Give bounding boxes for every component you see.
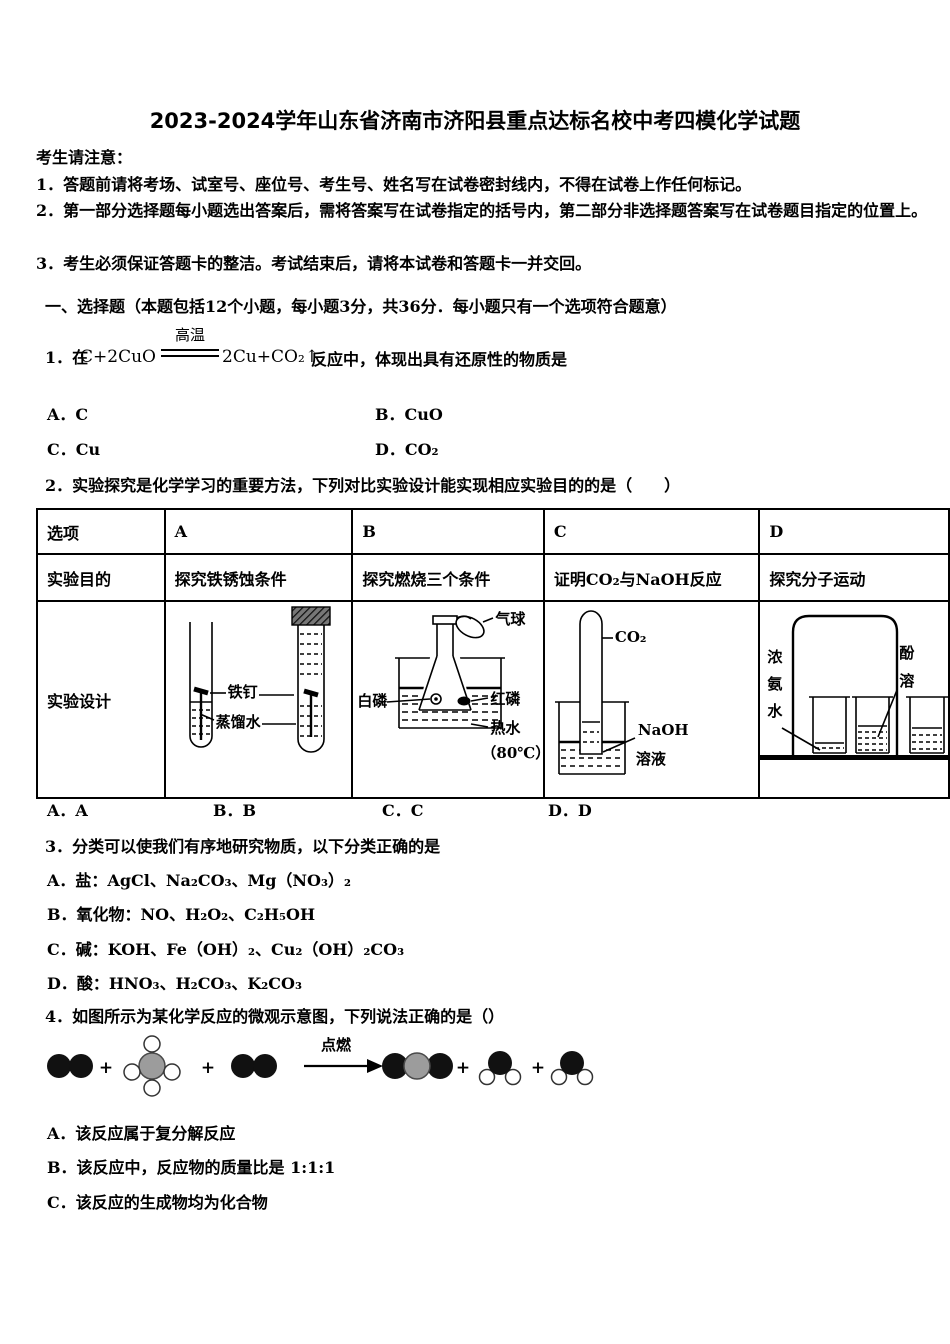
red-phosphorus-label: 红磷	[490, 690, 520, 709]
ammonia-water-label: 浓氨水	[767, 644, 784, 725]
q4-text: 4．如图所示为某化学反应的微观示意图，下列说法正确的是（）	[45, 1003, 504, 1030]
plus-sign: +	[456, 1058, 470, 1078]
q3-option-d: D．酸：HNO₃、H₂CO₃、K₂CO₃	[47, 970, 302, 997]
product-molecule-1	[382, 1053, 453, 1079]
notice-heading: 考生请注意：	[36, 144, 132, 171]
design-c-cell: CO₂ NaOH 溶液	[544, 601, 759, 798]
purpose-b: 探究燃烧三个条件	[352, 554, 544, 601]
reaction-micro-diagram: + + 点燃	[40, 1030, 625, 1109]
purpose-a: 探究铁锈蚀条件	[165, 554, 353, 601]
design-a-cell: 铁钉 蒸馏水	[165, 601, 353, 798]
design-b-cell: 气球 白磷 红磷 热水 （80℃）	[352, 601, 544, 798]
iron-nail-label: 铁钉	[228, 683, 258, 702]
q2-option-b: B．B	[213, 797, 256, 824]
equation-right-side: 2Cu+CO₂↑	[222, 347, 319, 367]
temperature-label: （80℃）	[481, 744, 544, 763]
notice-line-2: 2．第一部分选择题每小题选出答案后，需将答案写在试卷指定的括号内，第二部分非选择…	[36, 197, 928, 224]
reactant-molecule-2	[124, 1036, 180, 1096]
chemical-equation: C+2CuO 高温 2Cu+CO₂↑	[80, 327, 315, 371]
page-title: 2023-2024学年山东省济南市济阳县重点达标名校中考四模化学试题	[0, 105, 950, 135]
reactant-molecule-3	[231, 1054, 277, 1078]
rust-experiment-diagram: 铁钉 蒸馏水	[166, 602, 352, 797]
design-d-cell: 浓氨水 酚 溶	[759, 601, 949, 798]
purpose-d: 探究分子运动	[759, 554, 949, 601]
q4-option-c: C．该反应的生成物均为化合物	[47, 1189, 268, 1216]
solution-label: 溶液	[636, 750, 666, 769]
test-tubes-drawing	[166, 602, 353, 797]
co2-naoh-experiment-diagram: CO₂ NaOH 溶液	[545, 602, 758, 797]
reactant-molecule-1	[47, 1054, 93, 1078]
plus-sign: +	[201, 1058, 215, 1078]
q1-option-d: D．CO₂	[375, 436, 439, 463]
distilled-water-label: 蒸馏水	[216, 713, 261, 732]
table-purpose-row: 实验目的 探究铁锈蚀条件 探究燃烧三个条件 证明CO₂与NaOH反应 探究分子运…	[37, 554, 949, 601]
table-header-row: 选项 A B C D	[37, 509, 949, 554]
q2-option-d: D．D	[548, 797, 592, 824]
q1-option-b: B．CuO	[375, 401, 443, 428]
q1-option-c: C．Cu	[47, 436, 100, 463]
q2-text: 2．实验探究是化学学习的重要方法，下列对比实验设计能实现相应实验目的的是（ ）	[45, 472, 680, 499]
q4-option-a: A．该反应属于复分解反应	[47, 1120, 235, 1147]
header-b: B	[352, 509, 544, 554]
header-option: 选项	[37, 509, 165, 554]
reaction-arrow: 点燃	[304, 1036, 383, 1073]
table-design-row: 实验设计	[37, 601, 949, 798]
plus-sign: +	[531, 1058, 545, 1078]
equation-left-side: C+2CuO	[80, 347, 156, 367]
product-molecule-2	[480, 1051, 521, 1085]
hot-water-label: 热水	[490, 719, 520, 738]
q1-option-a: A．C	[47, 401, 88, 428]
co2-label: CO₂	[615, 628, 647, 647]
molecule-diagram-drawing: + + 点燃	[40, 1030, 625, 1105]
design-row-label: 实验设计	[37, 601, 165, 798]
notice-line-3: 3．考生必须保证答题卡的整洁。考试结束后，请将本试卷和答题卡一并交回。	[36, 250, 591, 277]
q1-suffix: 反应中，体现出具有还原性的物质是	[311, 346, 567, 373]
white-phosphorus-label: 白磷	[357, 692, 387, 711]
section-heading: 一、选择题（本题包括12个小题，每小题3分，共36分．每小题只有一个选项符合题意…	[45, 293, 677, 320]
bell-jar-drawing	[760, 602, 949, 797]
naoh-label: NaOH	[638, 721, 689, 740]
plus-sign: +	[99, 1058, 113, 1078]
equation-condition: 高温	[162, 324, 218, 345]
combustion-experiment-diagram: 气球 白磷 红磷 热水 （80℃）	[353, 602, 543, 797]
q2-option-a: A．A	[47, 797, 88, 824]
header-a: A	[165, 509, 353, 554]
purpose-c: 证明CO₂与NaOH反应	[544, 554, 759, 601]
q2-comparison-table: 选项 A B C D 实验目的 探究铁锈蚀条件 探究燃烧三个条件 证明CO₂与N…	[36, 508, 950, 799]
molecular-motion-diagram: 浓氨水 酚 溶	[760, 602, 948, 797]
header-d: D	[759, 509, 949, 554]
q3-text: 3．分类可以使我们有序地研究物质，以下分类正确的是	[45, 833, 440, 860]
purpose-row-label: 实验目的	[37, 554, 165, 601]
balloon-label: 气球	[495, 610, 525, 629]
phenolphthalein-partial-label-top: 酚	[899, 644, 914, 663]
q2-option-c: C．C	[382, 797, 423, 824]
q4-option-b: B．该反应中，反应物的质量比是 1:1:1	[47, 1154, 335, 1181]
q3-option-a: A．盐：AgCl、Na₂CO₃、Mg（NO₃）₂	[47, 867, 351, 894]
exam-paper-page: 2023-2024学年山东省济南市济阳县重点达标名校中考四模化学试题 考生请注意…	[0, 0, 950, 1344]
phenolphthalein-partial-label-bottom: 溶	[899, 672, 914, 691]
product-molecule-3	[552, 1051, 593, 1085]
ignite-label: 点燃	[321, 1036, 352, 1054]
header-c: C	[544, 509, 759, 554]
q3-option-b: B．氧化物：NO、H₂O₂、C₂H₅OH	[47, 901, 315, 928]
q3-option-c: C．碱：KOH、Fe（OH）₂、Cu₂（OH）₂CO₃	[47, 936, 404, 963]
equation-double-line	[161, 349, 219, 357]
notice-line-1: 1．答题前请将考场、试室号、座位号、考生号、姓名写在试卷密封线内，不得在试卷上作…	[36, 171, 751, 198]
